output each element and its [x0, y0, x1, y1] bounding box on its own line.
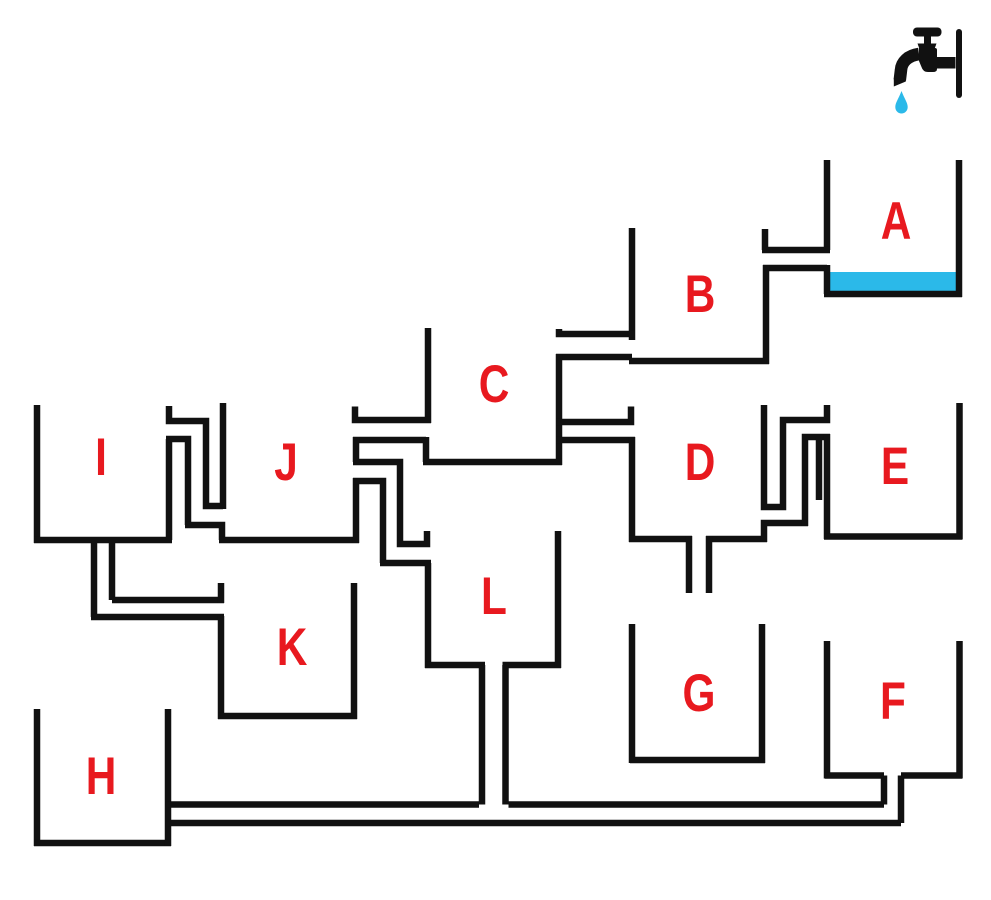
svg-text:E: E	[881, 438, 909, 497]
svg-text:I: I	[95, 429, 107, 488]
svg-text:G: G	[683, 665, 716, 724]
svg-text:H: H	[86, 748, 117, 807]
svg-text:F: F	[880, 673, 906, 732]
svg-text:J: J	[274, 434, 298, 493]
svg-text:K: K	[277, 619, 308, 678]
svg-text:C: C	[479, 356, 510, 415]
svg-text:D: D	[685, 434, 716, 493]
svg-text:L: L	[481, 568, 507, 627]
svg-text:A: A	[881, 193, 912, 252]
svg-text:B: B	[685, 266, 716, 325]
